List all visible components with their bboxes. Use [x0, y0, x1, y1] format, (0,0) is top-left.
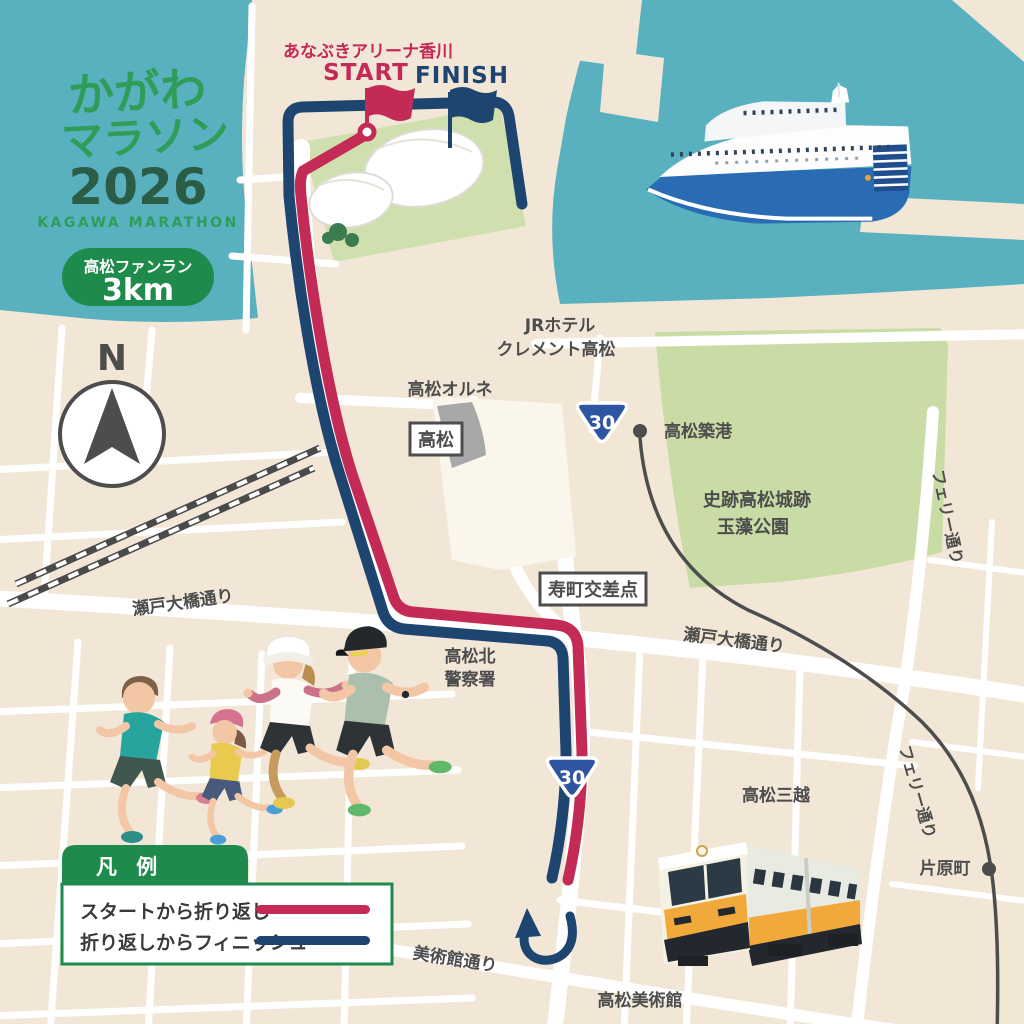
jr-hotel-label: JRホテル [524, 316, 595, 336]
logo-subtitle: KAGAWA MARATHON [37, 215, 239, 231]
compass-north-label: N [97, 338, 127, 379]
museum-label: 高松美術館 [598, 990, 683, 1011]
tree-icon [322, 232, 334, 244]
legend-outbound-swatch [256, 905, 370, 914]
logo-year: 2026 [68, 158, 207, 216]
ferry-street-label-south: フェリー通り [895, 743, 940, 841]
finish-label: FINISH [415, 63, 509, 89]
tree-icon [345, 233, 359, 247]
route-30-shield: 30 [547, 758, 596, 797]
tamamo-park-area [655, 328, 948, 588]
orune-label: 高松オルネ [408, 379, 493, 400]
kataharamachi-station-dot [982, 862, 996, 876]
takamatsu-station-sign: 高松 [410, 423, 462, 455]
marathon-course-map: 30 30 [0, 0, 1024, 1024]
distance-badge: 高松ファンラン 3km [62, 248, 214, 308]
route-30-shield: 30 [577, 403, 626, 442]
museum-street-label: 美術館通り [411, 942, 498, 976]
kotobuki-crossing-sign: 寿町交差点 [540, 573, 646, 605]
legend-item-label: スタートから折り返し [80, 901, 270, 923]
runners-illustration [100, 626, 452, 844]
kotobuki-crossing-label: 寿町交差点 [548, 579, 638, 601]
mitsukoshi-label: 高松三越 [742, 785, 811, 806]
start-label: START [323, 60, 409, 86]
takamatsu-station-label: 高松 [418, 429, 454, 451]
legend-title: 凡 例 [96, 855, 163, 879]
police-label: 高松北 [445, 646, 496, 667]
legend: 凡 例 スタートから折り返し 折り返しからフィニッシュ [62, 845, 392, 964]
venue-label: あなぶきアリーナ香川 [283, 42, 453, 62]
kataharamachi-label: 片原町 [920, 858, 971, 879]
train-illustration [658, 842, 862, 966]
jr-hotel-label: クレメント高松 [497, 339, 616, 360]
route-number: 30 [589, 412, 615, 434]
chikko-label: 高松築港 [664, 421, 733, 442]
tamamo-park-label: 玉藻公園 [717, 517, 789, 538]
badge-distance: 3km [102, 273, 174, 308]
tamamo-park-label: 史跡高松城跡 [703, 489, 811, 511]
runner-man [324, 626, 452, 816]
legend-return-swatch [256, 936, 370, 945]
route-number: 30 [559, 767, 585, 789]
police-label: 警察署 [444, 669, 496, 690]
chikko-station-dot [633, 424, 647, 438]
